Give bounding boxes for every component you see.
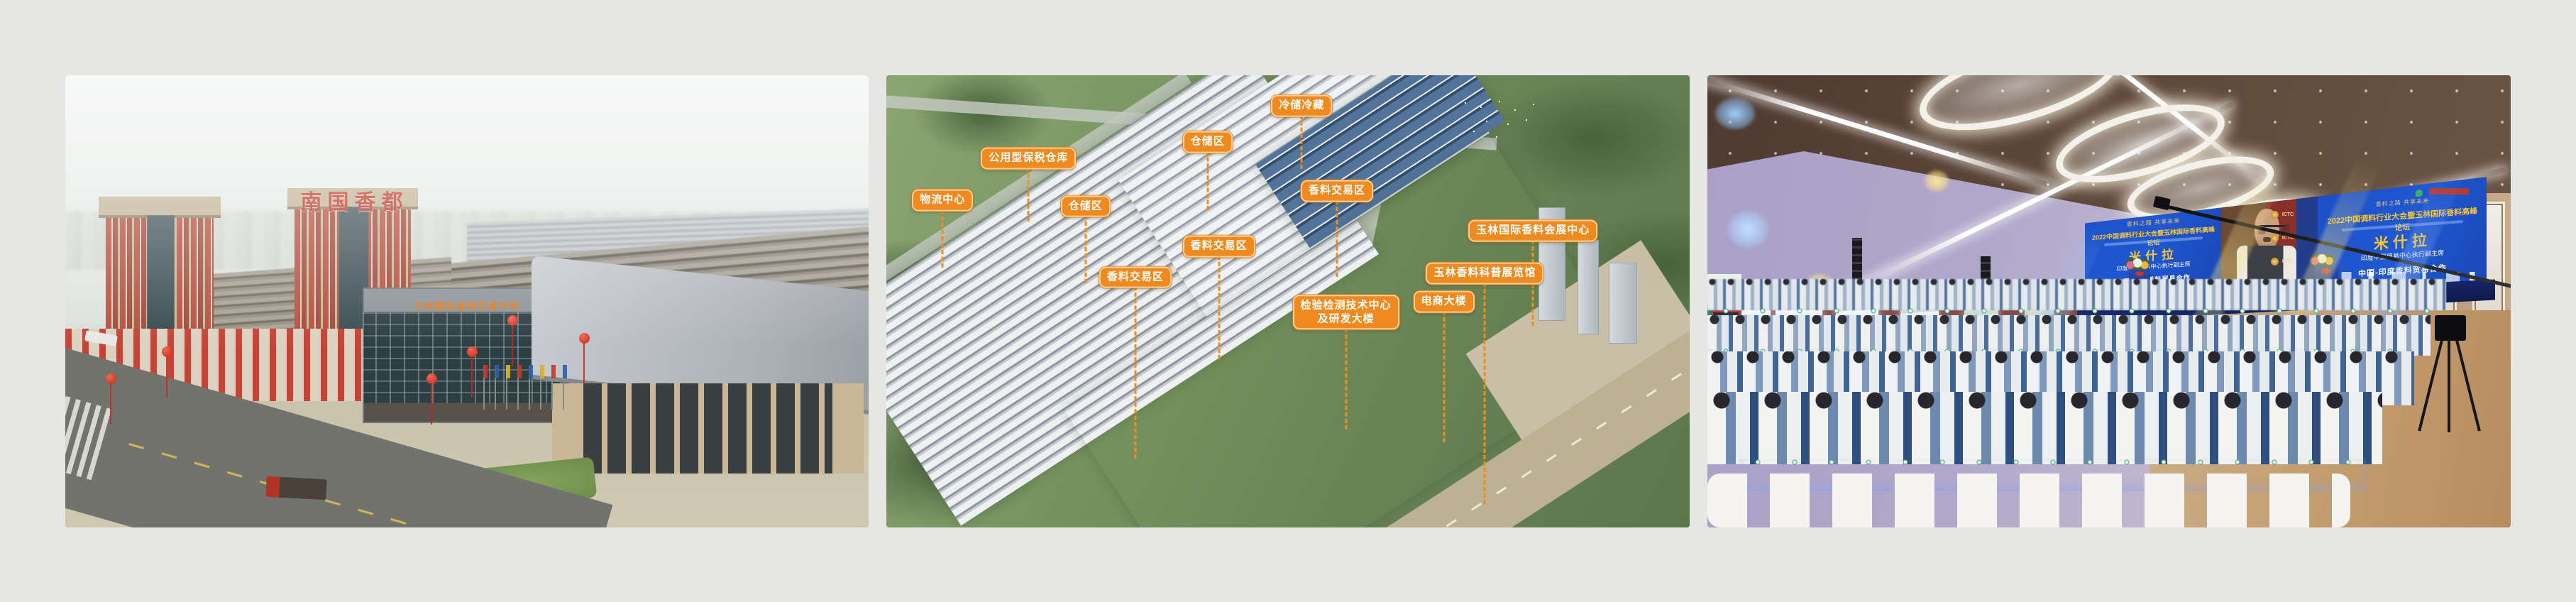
audience-row-near [1707, 392, 2382, 464]
zone-label-line-1 [942, 209, 944, 268]
zone-label-3: 仓储区 [1061, 195, 1111, 217]
ictc-logo-text: ICTC [2282, 227, 2294, 249]
tripod-leg [2448, 339, 2450, 432]
photo-middle-masterplan: 物流中心公用型保税仓库仓储区仓储区冷储冷藏香料交易区香料交易区香料交易区检验检测… [886, 75, 1690, 527]
zone-label-12: 玉林国际香料会展中心 [1468, 220, 1597, 242]
zone-label-5: 冷储冷藏 [1271, 95, 1332, 117]
zone-label-2: 公用型保税仓库 [981, 148, 1076, 170]
zone-label-line-8 [1134, 286, 1136, 458]
zone-label-line-4 [1206, 151, 1209, 210]
zone-label-line-5 [1301, 115, 1303, 169]
zone-label-11: 玉林香料科普展览馆 [1426, 263, 1543, 285]
entrance-sign: 玉林国际香料交易市场 [367, 299, 568, 312]
tripod-leg [2455, 339, 2481, 432]
zone-label-6: 香料交易区 [1301, 180, 1373, 202]
zone-label-line-11 [1484, 283, 1486, 504]
flower-bouquet [2125, 258, 2150, 270]
zone-label-line-6 [1336, 200, 1338, 277]
ictc-emblem-icon [2271, 234, 2279, 242]
video-camera-icon [2435, 315, 2467, 341]
photo-left-market-aerial: 南国香都 玉林国际香料交易市场 [65, 75, 869, 527]
photo-right-conference: 香料之路 共享未来 2022中国调料行业大会暨玉林国际香料高峰论坛 米什拉 印度… [1707, 75, 2511, 527]
ictc-logo-text: ICTC [2282, 204, 2294, 226]
zone-label-4: 仓储区 [1183, 131, 1233, 153]
chair-row-nearest [1707, 474, 2350, 527]
ictc-emblem-icon [2271, 258, 2279, 266]
zone-label-line-7 [1218, 256, 1220, 360]
photo-collage: 南国香都 玉林国际香料交易市场 [0, 0, 2576, 602]
zone-label-line-3 [1084, 215, 1086, 283]
zone-label-line-2 [1028, 168, 1030, 221]
zone-label-line-9 [1345, 322, 1347, 430]
zone-label-layer: 物流中心公用型保税仓库仓储区仓储区冷储冷藏香料交易区香料交易区香料交易区检验检测… [886, 75, 1690, 527]
audience-row-far [1707, 279, 2446, 311]
zone-label-1: 物流中心 [912, 189, 973, 211]
zone-label-10: 电商大楼 [1414, 291, 1475, 313]
zone-label-8: 香料交易区 [1099, 266, 1172, 288]
zone-label-9: 检验检测技术中心及研发大楼 [1292, 295, 1399, 330]
zone-label-7: 香料交易区 [1183, 235, 1255, 257]
ictc-logo-text: ICTC [2282, 251, 2294, 273]
zone-label-line-10 [1443, 311, 1445, 442]
ictc-emblem-icon [2271, 211, 2279, 219]
leaf-logo-icon [2416, 190, 2423, 197]
